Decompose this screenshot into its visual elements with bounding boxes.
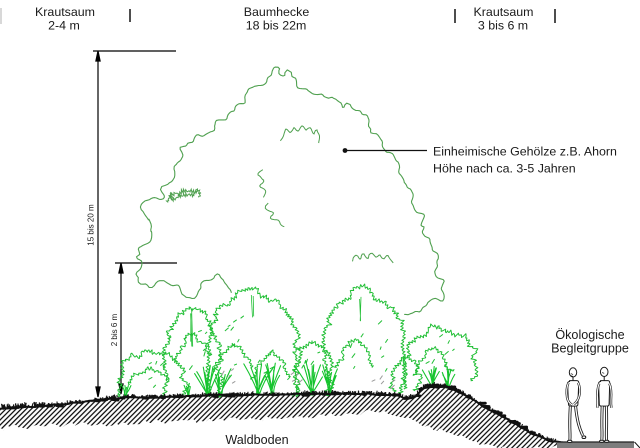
svg-text:Einheimische Gehölze z.B. Ahor: Einheimische Gehölze z.B. Ahorn xyxy=(433,145,617,159)
svg-text:3 bis 6 m: 3 bis 6 m xyxy=(478,19,528,33)
svg-text:Krautsaum: Krautsaum xyxy=(35,5,95,19)
svg-text:Krautsaum: Krautsaum xyxy=(474,5,534,19)
svg-text:Höhe nach ca. 3-5 Jahren: Höhe nach ca. 3-5 Jahren xyxy=(433,162,576,176)
svg-text:Ökologische: Ökologische xyxy=(555,328,624,342)
svg-text:15 bis 20 m: 15 bis 20 m xyxy=(87,204,96,246)
svg-text:Baumhecke: Baumhecke xyxy=(244,5,310,19)
svg-text:2 bis 6 m: 2 bis 6 m xyxy=(110,313,119,346)
svg-text:Begleitgruppe: Begleitgruppe xyxy=(551,342,629,356)
svg-text:Waldboden: Waldboden xyxy=(225,433,288,447)
svg-text:18 bis 22m: 18 bis 22m xyxy=(246,19,307,33)
svg-text:2-4 m: 2-4 m xyxy=(48,19,80,33)
